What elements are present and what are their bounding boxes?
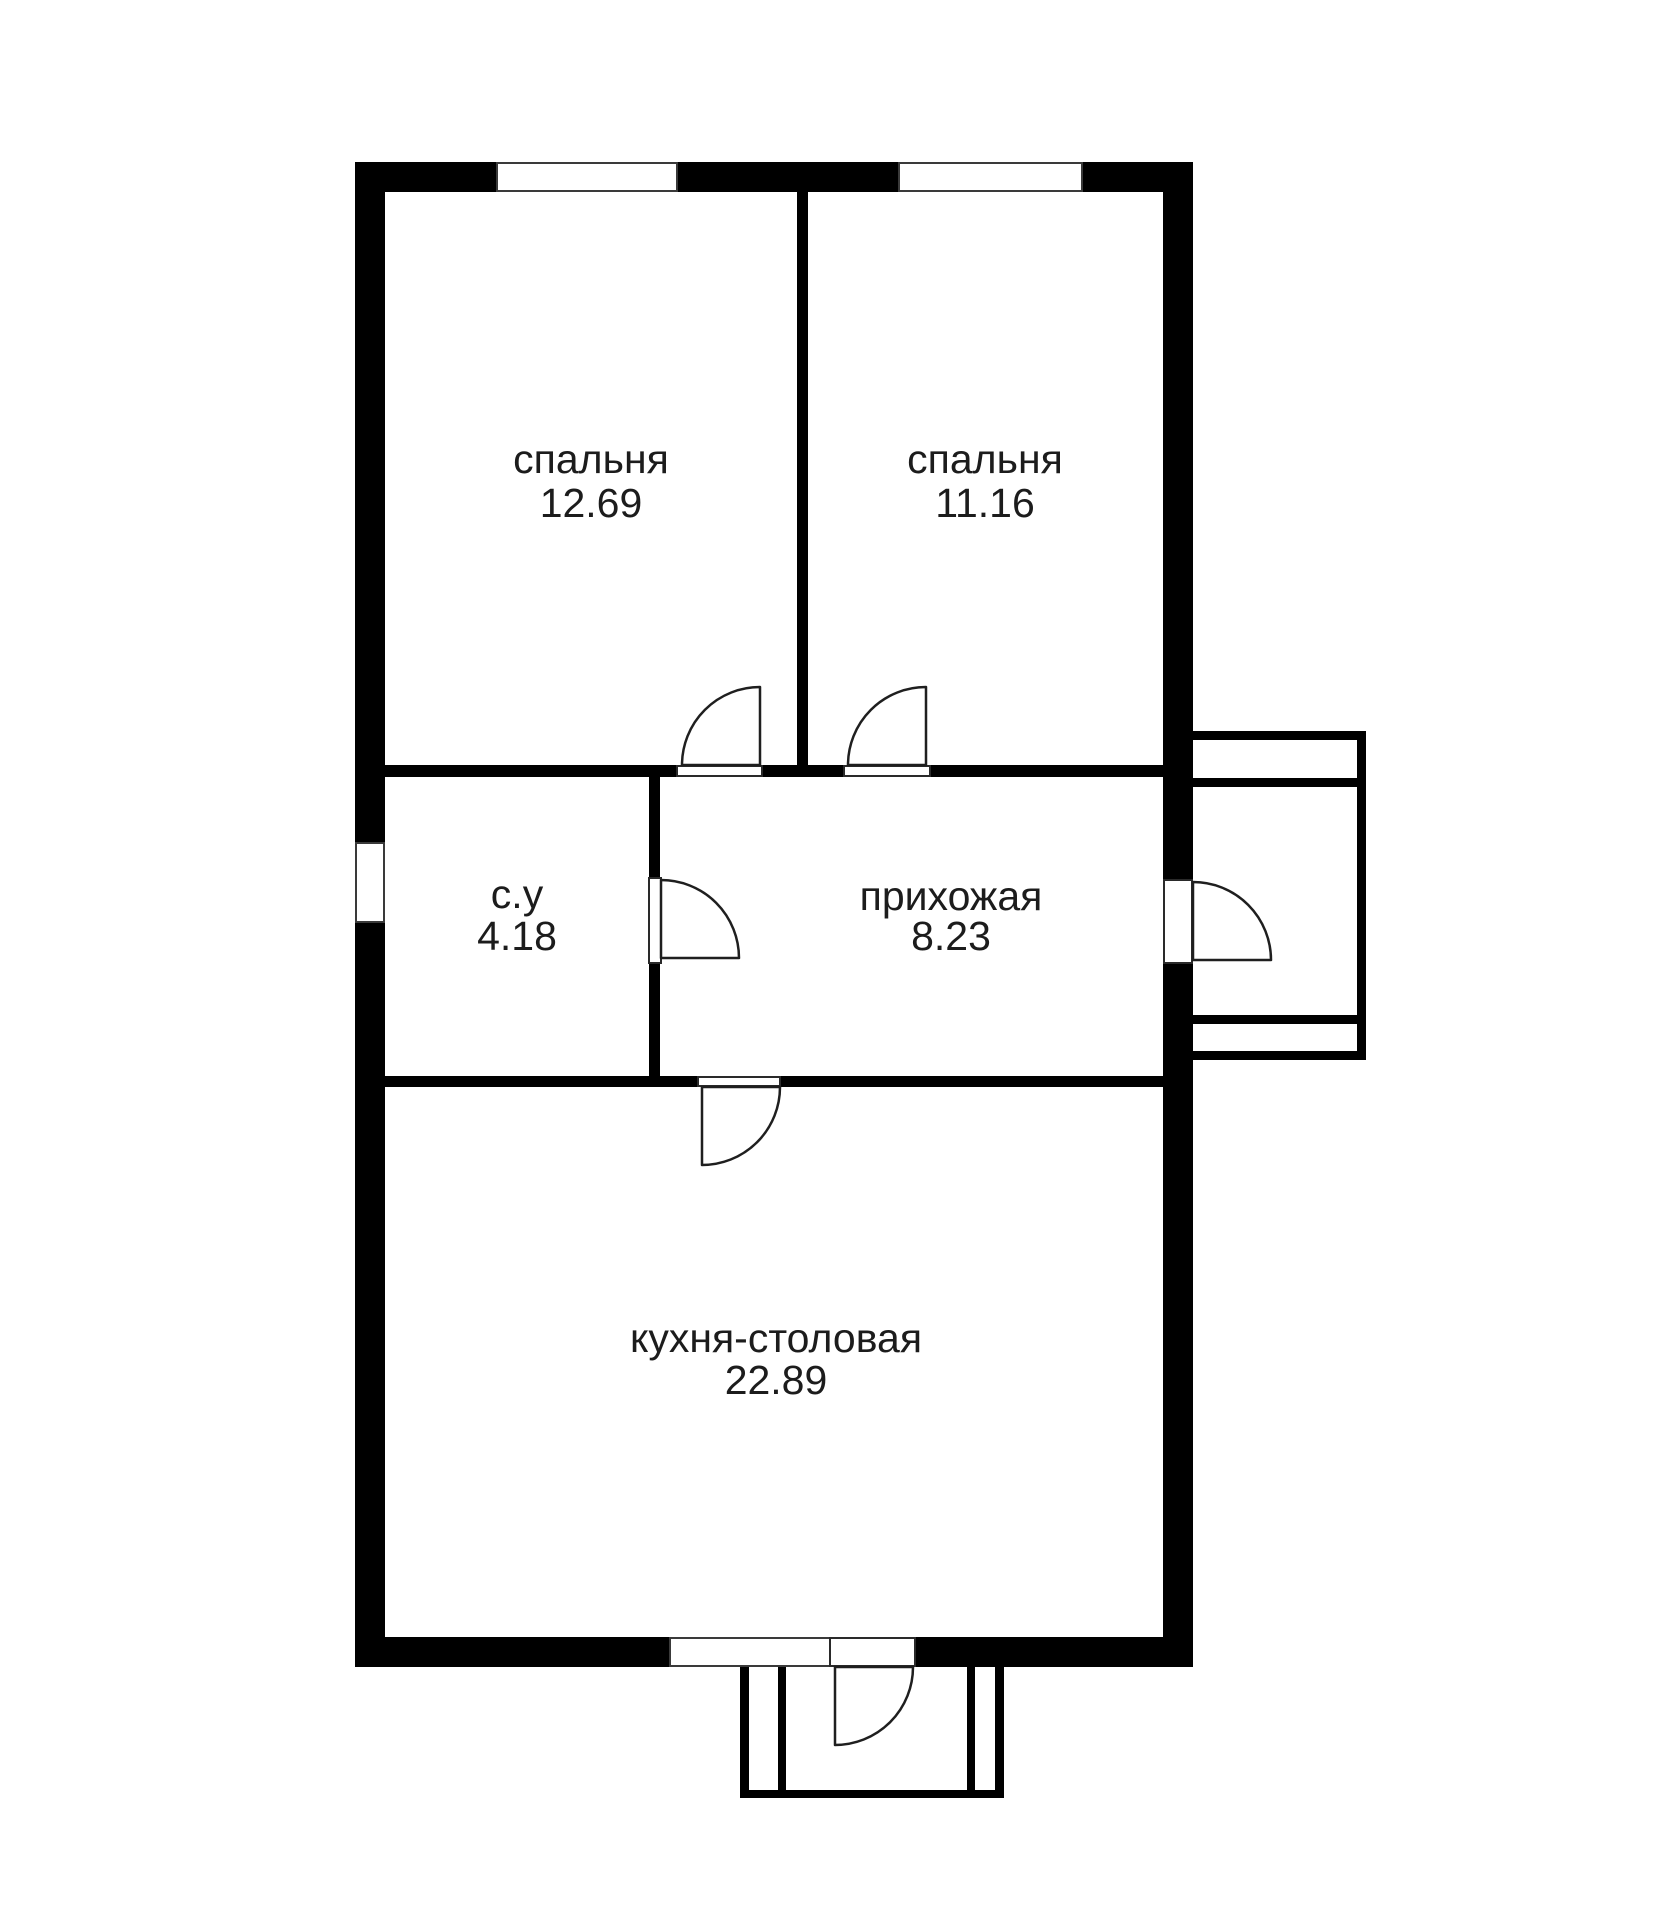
window-bathroom-left (356, 843, 384, 922)
door-opening-bathroom (649, 878, 661, 963)
right-porch-top-outer-wall (1193, 731, 1366, 740)
right-porch-top-inner-wall (1193, 778, 1357, 787)
bottom-porch-right-outer-wall (995, 1667, 1004, 1798)
room-label-bathroom: с.у (491, 871, 544, 917)
room-area-bathroom: 4.18 (477, 913, 557, 959)
right-porch-bottom-outer-wall (1193, 1051, 1366, 1060)
door-swing-entry (1193, 882, 1271, 960)
room-area-bedroom-2: 11.16 (935, 480, 1035, 526)
wall-middle-kitchen-right-segment (780, 1076, 1163, 1087)
room-label-bedroom-1: спальня (513, 436, 669, 482)
room-label-kitchen-dining: кухня-столовая (630, 1315, 922, 1361)
wall-bedrooms-middle-right-segment (930, 765, 1163, 777)
wall-middle-kitchen-left-segment (385, 1076, 698, 1087)
door-opening-bottom-porch (830, 1638, 915, 1666)
right-porch-right-wall (1357, 731, 1366, 1060)
wall-bedrooms-middle-center-segment (762, 765, 844, 777)
bottom-porch-left-inner-wall (778, 1667, 786, 1790)
bottom-porch-bottom-wall (740, 1790, 1004, 1798)
door-opening-entry (1164, 880, 1192, 963)
room-area-kitchen-dining: 22.89 (725, 1357, 828, 1403)
door-swing-bottom-porch (835, 1667, 913, 1745)
room-area-hallway: 8.23 (911, 913, 991, 959)
door-opening-bedroom-2 (844, 766, 930, 776)
window-bedroom-2-top (899, 163, 1082, 191)
room-area-bedroom-1: 12.69 (540, 480, 643, 526)
right-porch-bottom-inner-wall (1193, 1015, 1357, 1024)
wall-bedrooms-middle-left-segment (385, 765, 677, 777)
floor-plan-drawing: спальня 12.69 спальня 11.16 с.у 4.18 при… (0, 0, 1667, 1920)
window-kitchen-bottom (670, 1638, 830, 1666)
floor-plan-page: спальня 12.69 спальня 11.16 с.у 4.18 при… (0, 0, 1667, 1920)
wall-bathroom-hallway-upper-segment (649, 777, 660, 878)
bottom-porch-left-outer-wall (740, 1667, 749, 1798)
wall-bathroom-hallway-lower-segment (649, 963, 660, 1076)
door-opening-bedroom-1 (677, 766, 762, 776)
wall-between-bedrooms (797, 192, 808, 765)
door-opening-kitchen (698, 1077, 780, 1086)
bottom-porch-right-inner-wall (967, 1667, 975, 1790)
room-label-bedroom-2: спальня (907, 436, 1063, 482)
window-bedroom-1-top (497, 163, 677, 191)
